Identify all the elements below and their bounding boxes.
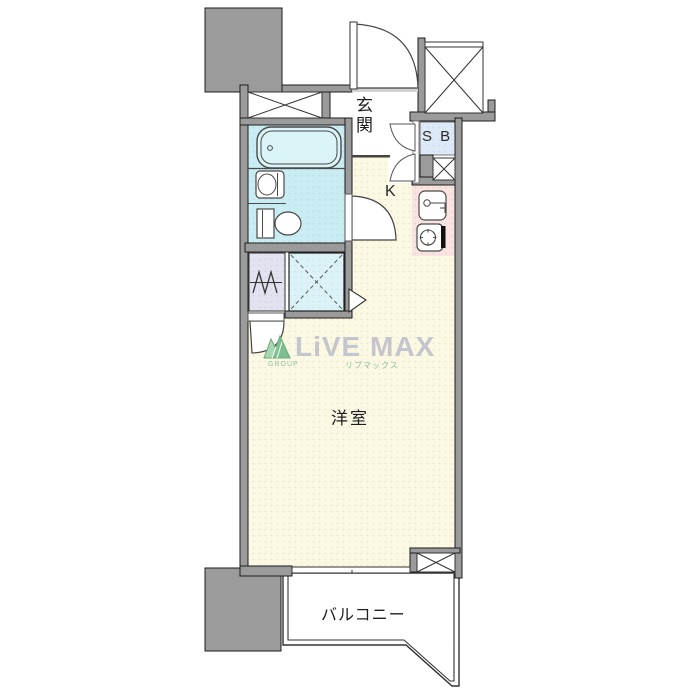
- wall-elevator-stub: [488, 100, 495, 112]
- wall-right: [455, 118, 462, 578]
- wall-left-of-bottom-box: [410, 553, 417, 572]
- pipe-space-cross-icon: [433, 158, 455, 180]
- wall-top: [282, 85, 352, 92]
- elevator-cross-icon: [425, 42, 483, 113]
- entrance-door-leaf: [350, 22, 357, 89]
- western-room-label: 洋室: [331, 404, 369, 429]
- balcony-label: バルコニー: [321, 601, 406, 625]
- wall-shoebox-piece: [420, 155, 433, 180]
- entrance-label: 玄関: [356, 96, 376, 136]
- wall-bottom-stub: [240, 566, 292, 576]
- balcony-window: [292, 567, 410, 573]
- wall-above-bottom-box: [410, 548, 460, 553]
- bathtub-icon: [257, 127, 341, 168]
- wall-washroom-bottom: [285, 311, 352, 318]
- entrance-step-line: [352, 155, 390, 158]
- stove-handle: [441, 226, 446, 248]
- wall-bath-wash-divider: [245, 243, 345, 252]
- balcony-area: [283, 573, 459, 686]
- wall-block-bottom-left: [205, 568, 281, 651]
- washroom-door-leaf: [248, 313, 284, 321]
- wall-elevator-left: [418, 38, 425, 116]
- wall-block-top-left: [205, 8, 282, 92]
- closet-cross-icon: [248, 92, 322, 118]
- kitchen-label: K: [385, 183, 396, 201]
- stove-icon: [417, 224, 446, 251]
- shower-room-box: [289, 253, 344, 311]
- floor-plan-drawing: [0, 0, 700, 700]
- kitchen-sink-icon: [419, 191, 446, 220]
- bottom-right-cross-icon: [417, 553, 455, 572]
- wall-left: [240, 85, 248, 568]
- livemax-reading-text: リブマックス: [345, 360, 399, 371]
- shoe-box-label: S B: [422, 128, 452, 145]
- bathroom-door-leaf: [345, 194, 352, 241]
- entrance-door-swing: [354, 24, 418, 88]
- wall-bath-top: [240, 118, 352, 125]
- balcony-outline-outer: [283, 573, 459, 686]
- livemax-group-text: GROUP: [268, 361, 299, 368]
- floor-plan: 玄関 S B K 洋室 バルコニー LiVE MAX GROUP リブマックス: [0, 0, 700, 700]
- washbasin-icon: [256, 171, 284, 198]
